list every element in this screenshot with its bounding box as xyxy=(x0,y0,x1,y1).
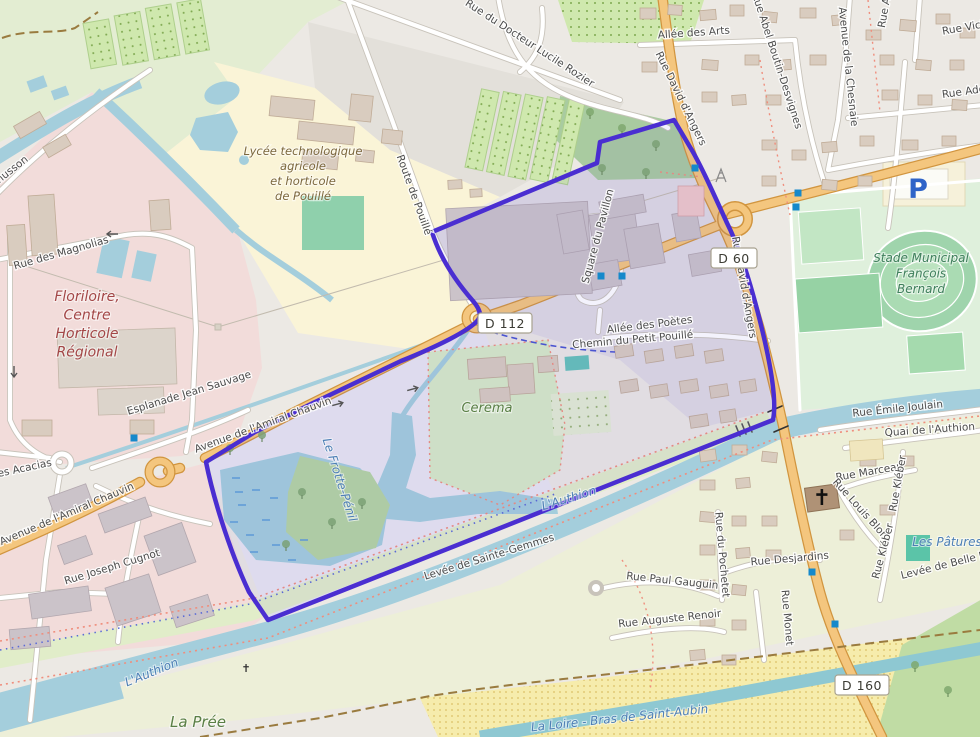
building xyxy=(269,96,315,120)
building xyxy=(130,420,154,434)
building xyxy=(732,620,746,630)
building xyxy=(732,584,747,595)
building xyxy=(840,530,854,540)
svg-text:D 112: D 112 xyxy=(485,316,525,331)
building xyxy=(849,439,883,461)
building xyxy=(942,136,956,146)
blue-square-marker xyxy=(598,273,605,280)
building xyxy=(470,189,482,198)
church-cross-icon: ✝ xyxy=(813,486,831,511)
area-label-cerema: Cerema xyxy=(461,401,512,416)
building xyxy=(882,90,898,100)
building xyxy=(792,150,806,160)
building xyxy=(349,94,374,122)
tree-icon xyxy=(911,661,919,669)
building xyxy=(736,477,751,488)
building xyxy=(642,62,657,72)
lycee-field xyxy=(302,196,364,250)
road-badge-d-112: D 112 xyxy=(478,313,532,333)
building xyxy=(9,626,51,649)
building xyxy=(902,140,918,150)
building xyxy=(700,545,715,555)
building xyxy=(732,95,747,106)
tree-icon xyxy=(586,108,594,116)
building xyxy=(860,136,874,146)
map-render: P✝✝ Allée des ArtsRue du Docteur Lucile … xyxy=(0,0,980,737)
building xyxy=(700,480,715,490)
building xyxy=(732,445,747,455)
building xyxy=(668,5,683,16)
building xyxy=(950,60,964,70)
building xyxy=(149,199,171,230)
blue-square-marker xyxy=(809,569,816,576)
svg-text:D 160: D 160 xyxy=(842,678,882,693)
building xyxy=(762,451,778,463)
building xyxy=(800,8,816,18)
blue-square-marker xyxy=(619,273,626,280)
svg-text:D 60: D 60 xyxy=(718,251,750,266)
building xyxy=(381,129,402,145)
building xyxy=(762,516,777,526)
building xyxy=(700,9,717,20)
building xyxy=(702,59,719,70)
building xyxy=(762,140,777,150)
water-label-les-p-tures: Les Pâtures xyxy=(912,535,980,549)
building xyxy=(732,516,746,526)
building xyxy=(866,30,881,40)
building xyxy=(745,55,759,65)
building xyxy=(28,194,58,256)
building xyxy=(736,547,751,558)
parking-icon: P xyxy=(908,174,928,205)
tree-icon xyxy=(618,124,626,132)
building xyxy=(730,5,744,16)
area-label-la-pree: La Prée xyxy=(170,713,226,731)
building xyxy=(918,95,932,105)
blue-square-marker xyxy=(793,204,800,211)
building xyxy=(858,176,872,186)
memorial-cross-icon: ✝ xyxy=(241,662,250,675)
building xyxy=(916,59,932,70)
building xyxy=(699,449,716,462)
road-badge-d-160: D 160 xyxy=(835,675,889,695)
building xyxy=(900,19,917,31)
building xyxy=(822,179,838,190)
tree-icon xyxy=(944,686,952,694)
building xyxy=(702,92,717,102)
blue-square-marker xyxy=(131,435,138,442)
building xyxy=(810,55,826,65)
building xyxy=(448,180,462,190)
building xyxy=(762,176,776,186)
building xyxy=(822,141,838,152)
building xyxy=(22,420,52,436)
building xyxy=(766,95,781,105)
building xyxy=(880,55,894,65)
building xyxy=(936,14,950,24)
blue-square-marker xyxy=(832,621,839,628)
building xyxy=(690,649,706,660)
building xyxy=(640,8,656,19)
blue-square-marker xyxy=(795,190,802,197)
road-badge-d-60: D 60 xyxy=(711,248,757,268)
map-canvas[interactable]: P✝✝ Allée des ArtsRue du Docteur Lucile … xyxy=(0,0,980,737)
blue-square-marker xyxy=(692,165,699,172)
building xyxy=(952,99,968,110)
